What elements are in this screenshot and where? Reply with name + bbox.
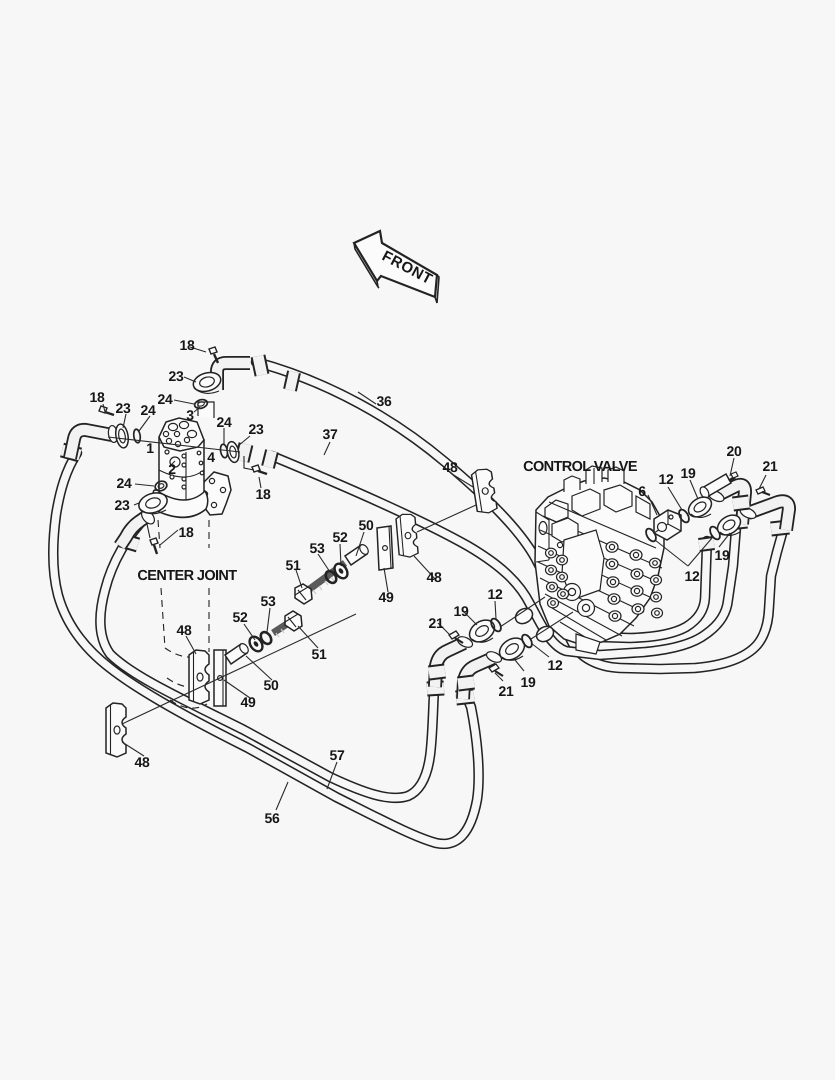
svg-text:50: 50 <box>359 517 374 533</box>
svg-text:37: 37 <box>323 426 338 442</box>
svg-text:24: 24 <box>117 475 132 491</box>
svg-text:36: 36 <box>377 393 392 409</box>
svg-text:23: 23 <box>115 497 130 513</box>
svg-text:48: 48 <box>177 622 192 638</box>
svg-text:18: 18 <box>256 486 271 502</box>
svg-text:4: 4 <box>207 449 215 465</box>
svg-text:18: 18 <box>90 389 105 405</box>
svg-text:2: 2 <box>168 461 176 477</box>
svg-text:24: 24 <box>158 391 173 407</box>
svg-text:21: 21 <box>429 615 444 631</box>
svg-text:49: 49 <box>379 589 394 605</box>
svg-text:23: 23 <box>116 400 131 416</box>
svg-text:3: 3 <box>186 407 194 423</box>
svg-text:51: 51 <box>312 646 327 662</box>
svg-text:6: 6 <box>638 483 646 499</box>
svg-text:19: 19 <box>521 674 536 690</box>
svg-text:24: 24 <box>217 414 232 430</box>
svg-text:19: 19 <box>715 547 730 563</box>
svg-text:52: 52 <box>233 609 248 625</box>
svg-text:12: 12 <box>548 657 563 673</box>
svg-text:50: 50 <box>264 677 279 693</box>
svg-text:53: 53 <box>310 540 325 556</box>
svg-text:1: 1 <box>146 440 154 456</box>
svg-text:57: 57 <box>330 747 345 763</box>
svg-text:12: 12 <box>488 586 503 602</box>
svg-text:23: 23 <box>249 421 264 437</box>
svg-text:51: 51 <box>286 557 301 573</box>
svg-text:24: 24 <box>141 402 156 418</box>
svg-text:53: 53 <box>261 593 276 609</box>
svg-text:20: 20 <box>727 443 742 459</box>
svg-text:21: 21 <box>499 683 514 699</box>
svg-text:19: 19 <box>454 603 469 619</box>
svg-text:12: 12 <box>685 568 700 584</box>
svg-text:21: 21 <box>763 458 778 474</box>
svg-text:CENTER JOINT: CENTER JOINT <box>137 568 237 584</box>
svg-text:12: 12 <box>659 471 674 487</box>
svg-text:56: 56 <box>265 810 280 826</box>
svg-text:23: 23 <box>169 368 184 384</box>
svg-text:52: 52 <box>333 529 348 545</box>
svg-text:18: 18 <box>180 337 195 353</box>
svg-text:49: 49 <box>241 694 256 710</box>
svg-text:48: 48 <box>135 754 150 770</box>
svg-text:18: 18 <box>179 524 194 540</box>
svg-text:CONTROL VALVE: CONTROL VALVE <box>523 459 638 475</box>
svg-text:48: 48 <box>427 569 442 585</box>
svg-text:19: 19 <box>681 465 696 481</box>
svg-text:48: 48 <box>443 459 458 475</box>
